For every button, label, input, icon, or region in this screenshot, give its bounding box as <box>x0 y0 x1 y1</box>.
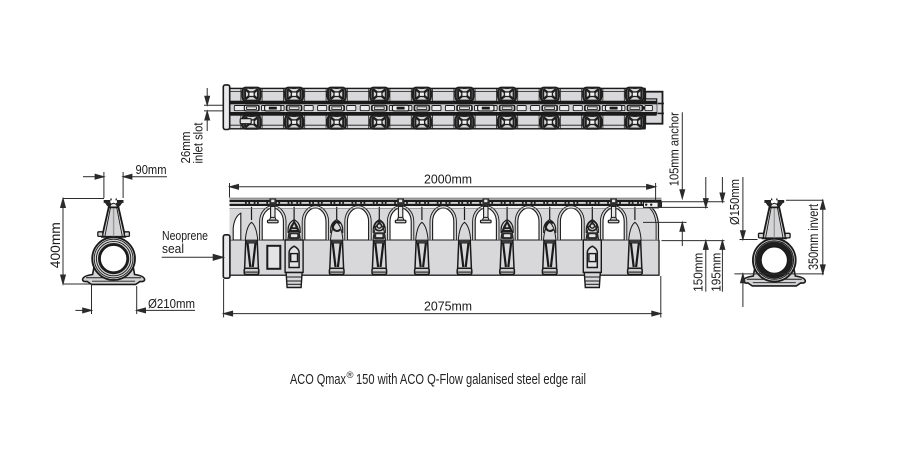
svg-text:2000mm: 2000mm <box>424 172 472 187</box>
svg-text:400mm: 400mm <box>47 222 63 268</box>
svg-text:Ø150mm: Ø150mm <box>727 179 742 225</box>
svg-text:350mm invert: 350mm invert <box>805 204 821 270</box>
svg-text:105mm anchor: 105mm anchor <box>667 112 682 187</box>
svg-text:®: ® <box>347 370 354 381</box>
svg-text:seal: seal <box>162 242 184 256</box>
svg-text:inlet slot: inlet slot <box>190 122 205 163</box>
svg-text:150mm: 150mm <box>690 253 705 292</box>
svg-text:Neoprene: Neoprene <box>162 229 208 243</box>
svg-text:ACO Qmax: ACO Qmax <box>290 371 346 388</box>
svg-text:90mm: 90mm <box>136 162 167 177</box>
svg-text:150 with ACO Q-Flow galanised: 150 with ACO Q-Flow galanised steel edge… <box>356 371 586 388</box>
svg-text:195mm: 195mm <box>709 253 724 292</box>
svg-text:Ø210mm: Ø210mm <box>148 296 195 311</box>
svg-text:2075mm: 2075mm <box>424 298 472 313</box>
